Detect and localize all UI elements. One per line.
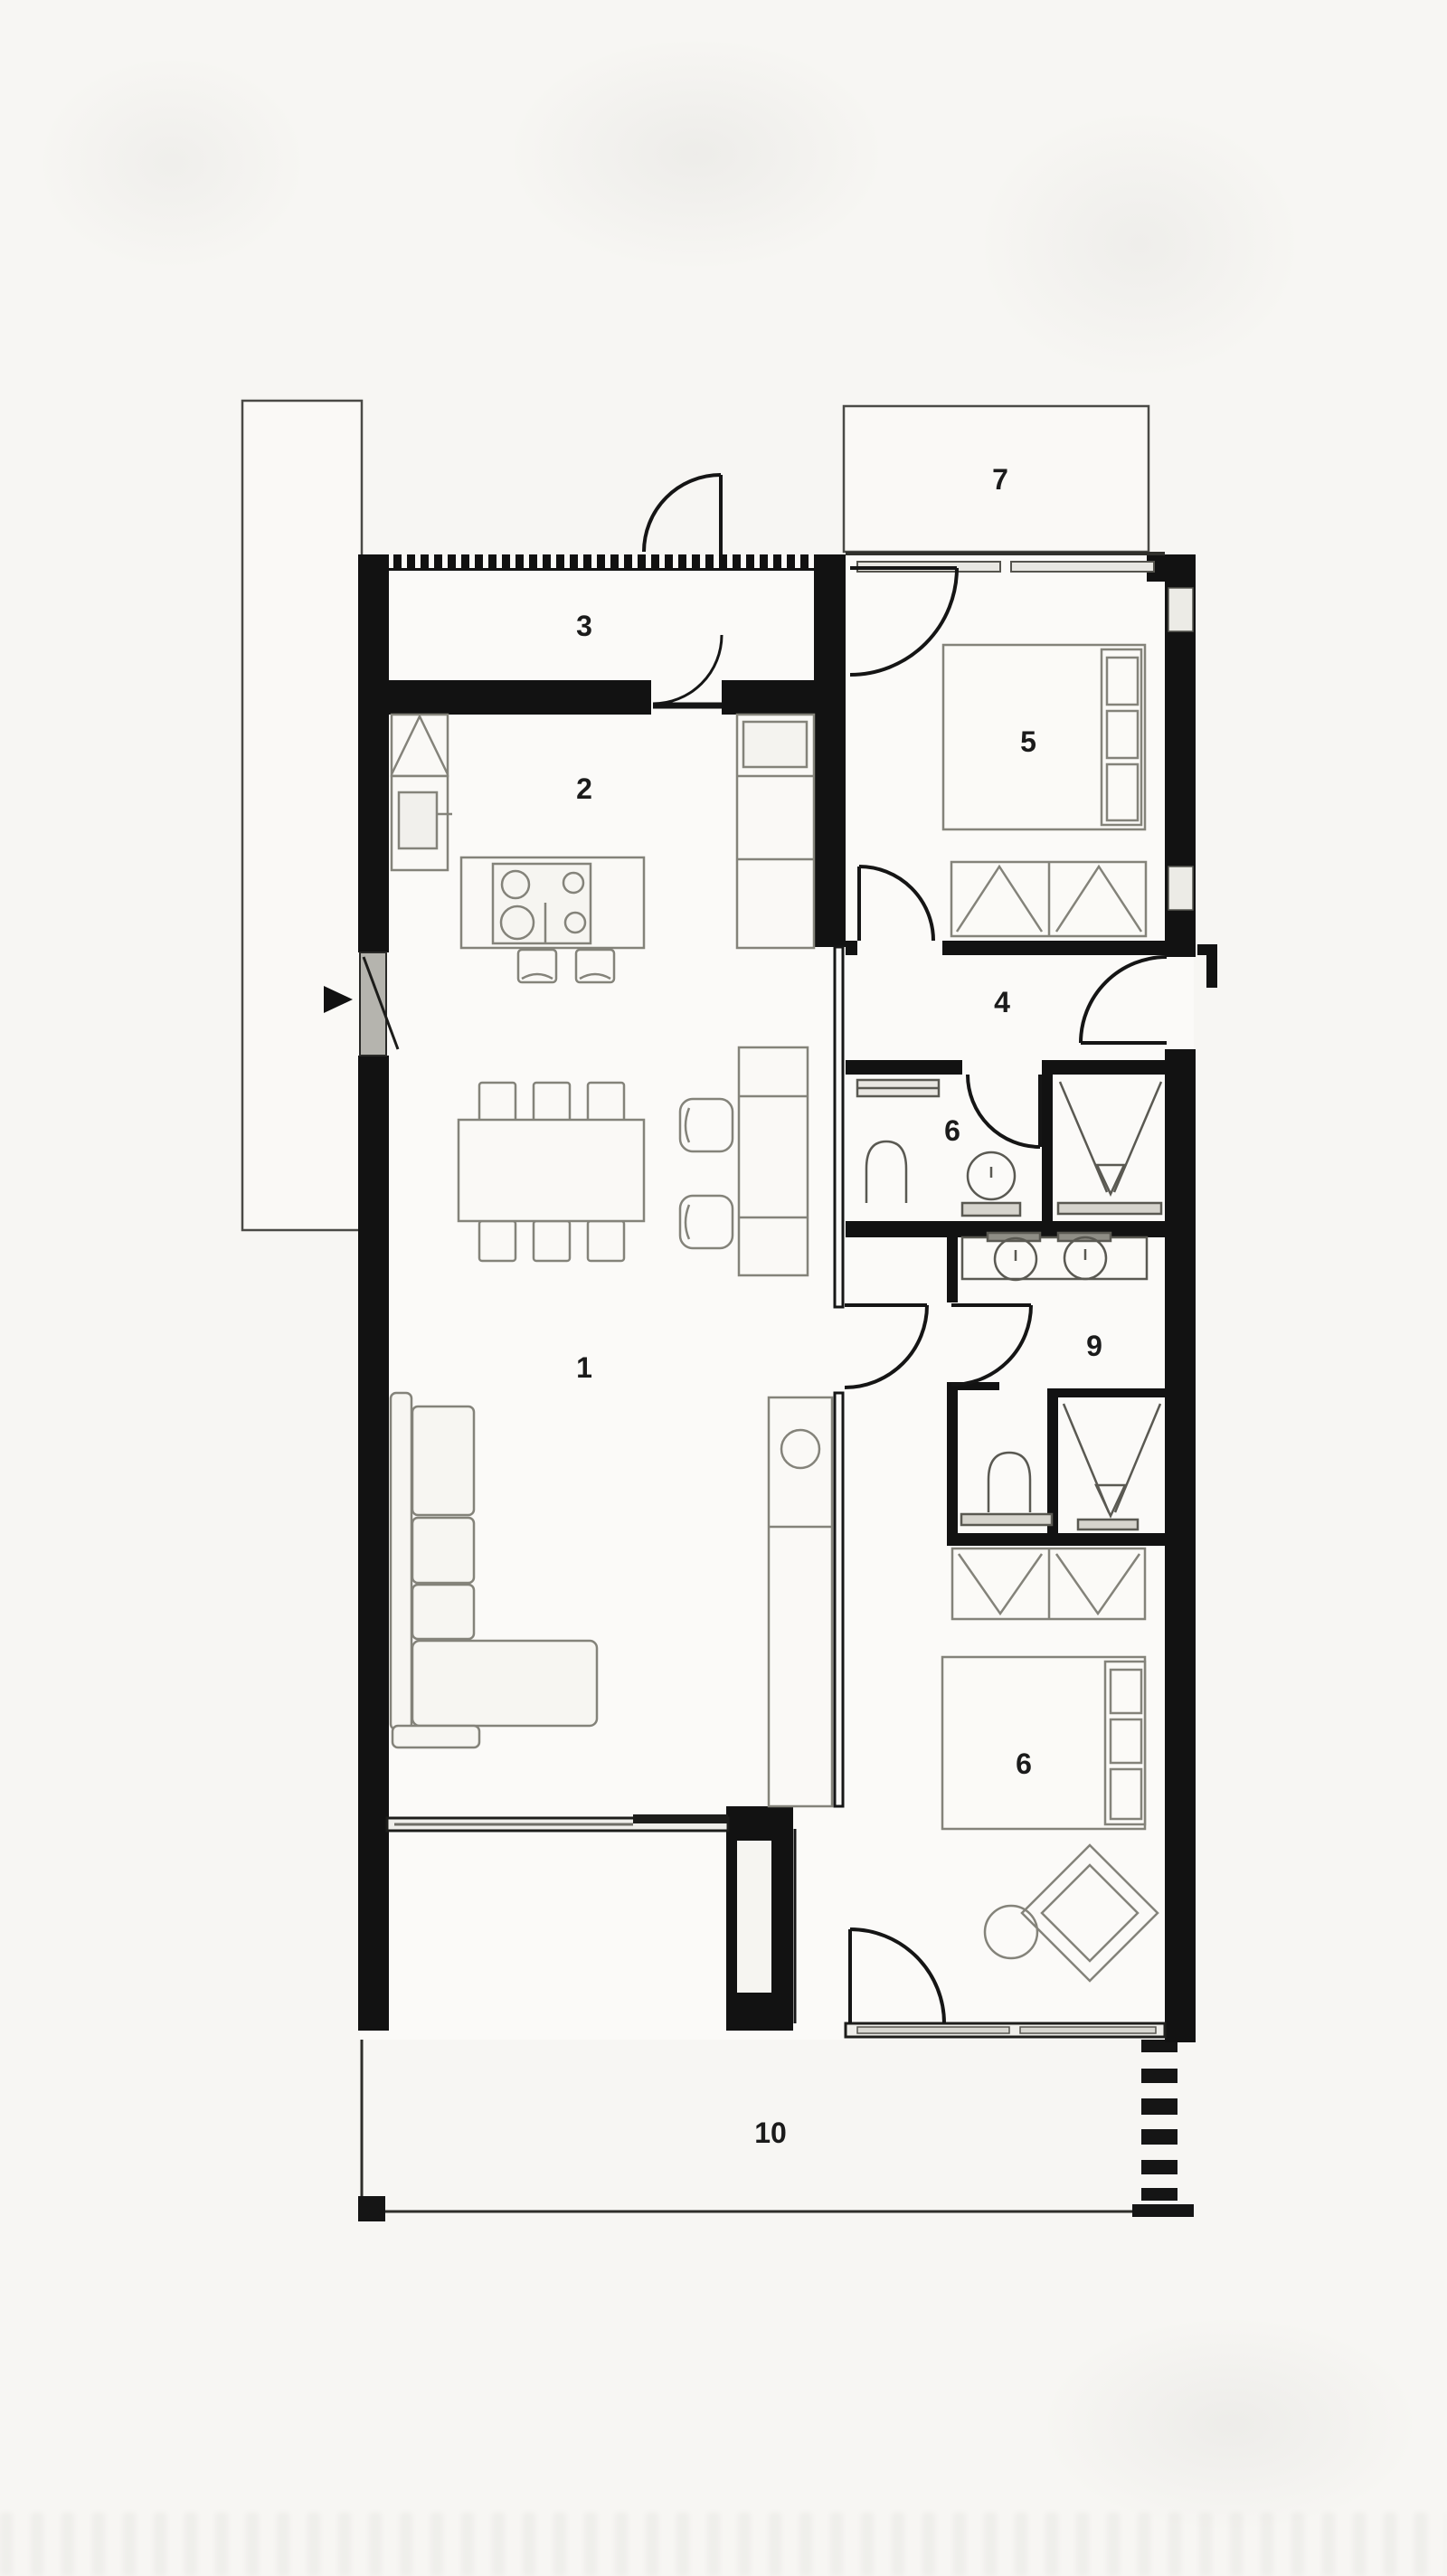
sliding-sash (1020, 2027, 1156, 2033)
toilet-base (961, 1514, 1052, 1525)
dining-chair (588, 1083, 624, 1122)
sliding-sash-dark (633, 1814, 728, 1823)
pillow (1107, 658, 1138, 705)
side-yard (242, 401, 362, 1230)
vanity-counter (962, 1237, 1147, 1279)
sliding-sash (1011, 562, 1154, 572)
room-label-hallway: 4 (994, 986, 1010, 1018)
shower-left-wall (1047, 1388, 1058, 1535)
basin-stand (962, 1203, 1020, 1216)
shower-top-wall (1053, 1388, 1167, 1397)
pillow (1111, 1670, 1141, 1713)
dining-chair (534, 1083, 570, 1122)
left-wall-upper (358, 554, 389, 952)
pantry-cabinet (392, 715, 448, 776)
wall-vent (1168, 588, 1193, 631)
sliding-sash (857, 2027, 1009, 2033)
room-label-bedroom-top: 5 (1020, 725, 1036, 758)
sofa-cushion (412, 1518, 474, 1583)
bath9-bottom-wall (947, 1533, 1167, 1546)
sideboard (739, 1047, 808, 1275)
room-label-bathroom: 6 (944, 1114, 960, 1147)
dining-chair (534, 1221, 570, 1261)
entry-bottom-wall-right (722, 680, 818, 715)
pillow (1107, 764, 1138, 820)
sofa-backrest (391, 1393, 411, 1729)
room-label-bedroom-bottom: 6 (1016, 1747, 1032, 1780)
sink-basin-icon (399, 792, 437, 848)
entry-bedroom-divider-wall (814, 554, 846, 947)
pillow (1111, 1719, 1141, 1763)
sofa-cushion (412, 1585, 474, 1639)
wall-vent (1168, 867, 1193, 910)
bedroom-5 (943, 645, 1146, 936)
utility-column (769, 1397, 832, 1806)
left-wall-lower (358, 1056, 389, 2031)
sofa-cushion (412, 1406, 474, 1515)
room-label-terrace: 10 (754, 2117, 787, 2149)
door-jamb-mark (1206, 955, 1217, 988)
dining-chair (479, 1083, 515, 1122)
entry-bottom-wall-left (389, 680, 651, 715)
room-label-balcony: 7 (992, 463, 1008, 496)
top-wall-baseline (389, 568, 818, 571)
right-wall-lower (1165, 1049, 1196, 2042)
bath-shower-divider (1042, 1075, 1053, 1223)
dining-chair (588, 1221, 624, 1261)
door-jamb-mark (1197, 944, 1217, 955)
room-label-entry: 3 (576, 610, 592, 642)
terrace-corner-block (358, 2196, 385, 2221)
room-label-kitchen: 2 (576, 772, 592, 805)
shower-base (1078, 1520, 1138, 1529)
dining-table (459, 1120, 644, 1221)
floor-plan-drawing: 1 2 3 4 5 6 7 9 6 10 (0, 0, 1447, 2576)
room-label-bathroom-9: 9 (1086, 1330, 1102, 1362)
floor-plan-page: 1 2 3 4 5 6 7 9 6 10 (0, 0, 1447, 2576)
pillar-niche (737, 1841, 771, 1993)
dining-chair (479, 1221, 515, 1261)
shower-base (1058, 1203, 1161, 1214)
pillow (1111, 1769, 1141, 1819)
sofa-armrest (392, 1726, 479, 1747)
entrance-door-arc (644, 475, 721, 552)
sofa-chaise (412, 1641, 597, 1726)
vanity-backsplash (988, 1233, 1040, 1241)
pillow (1107, 711, 1138, 758)
room-label-living: 1 (576, 1351, 592, 1384)
